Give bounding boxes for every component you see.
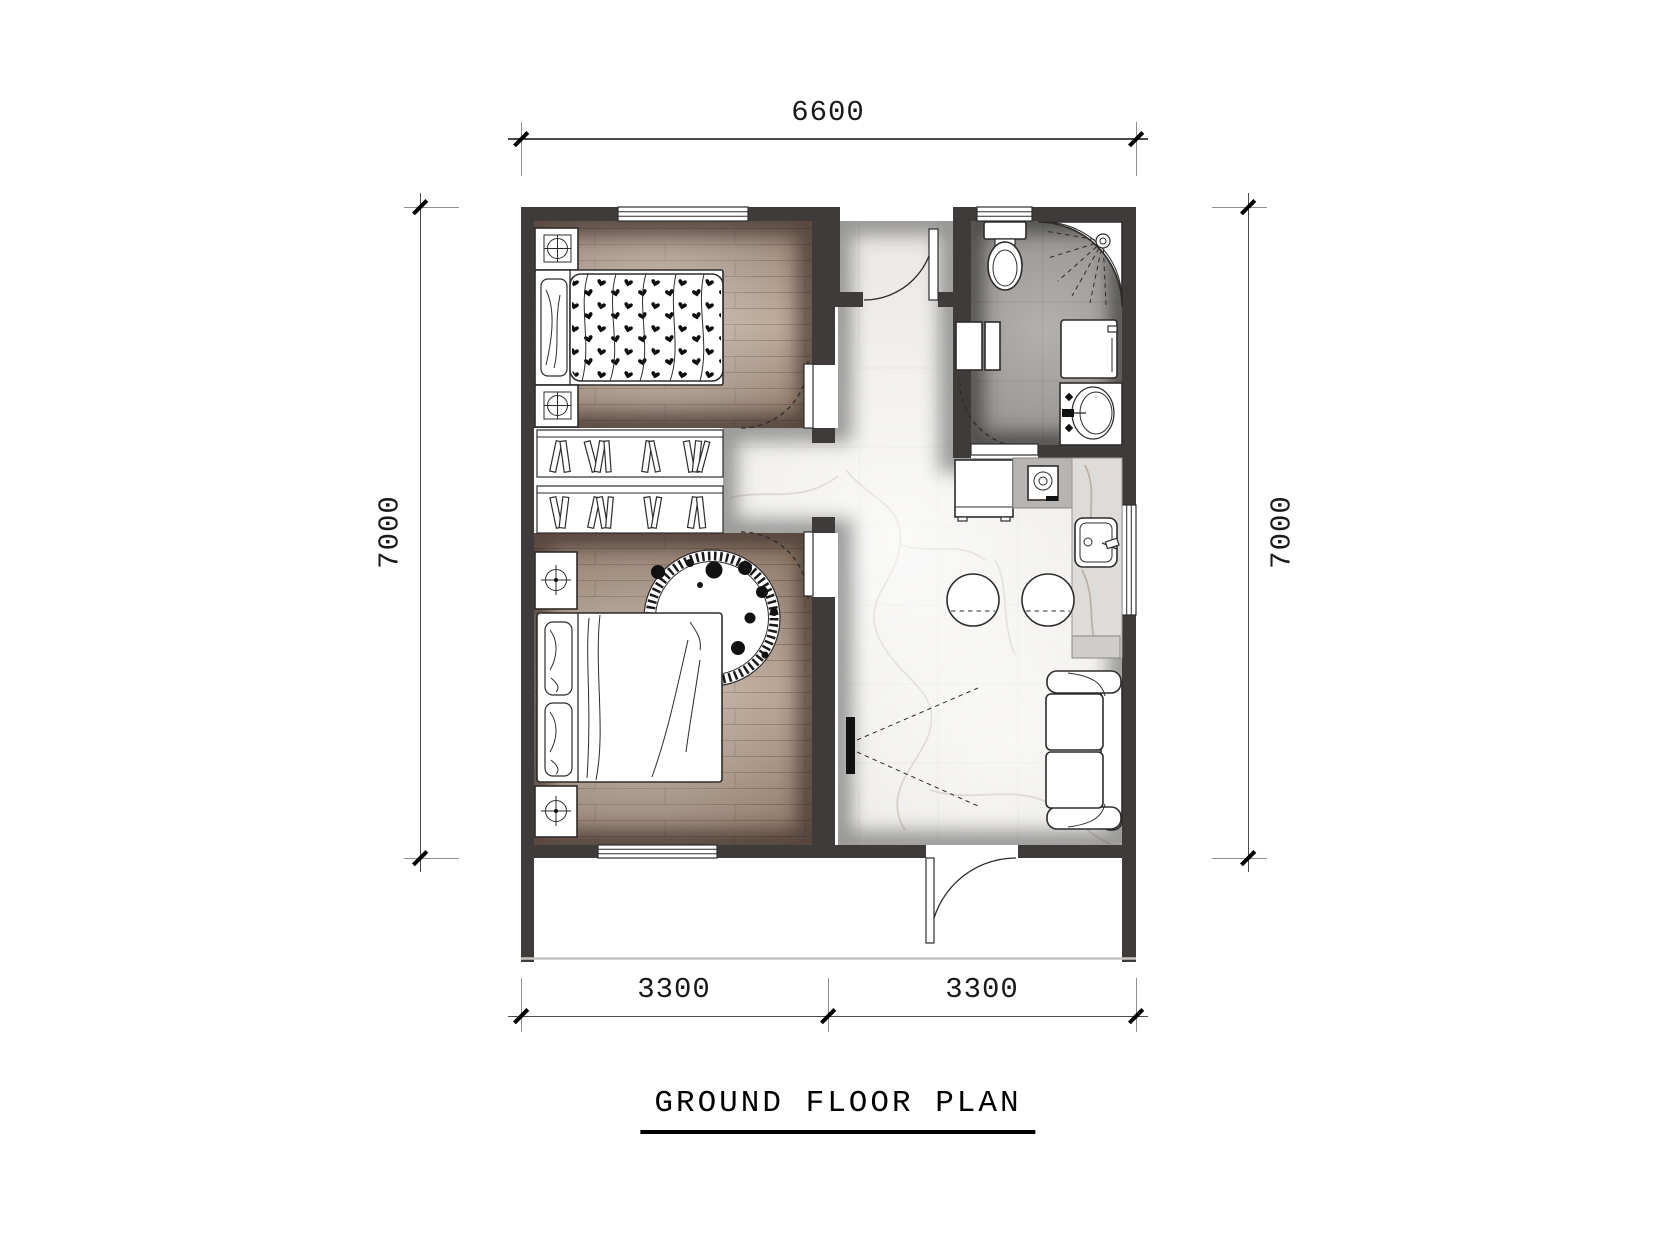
bed-single (535, 270, 723, 385)
window-bedroom2-bottom (598, 845, 717, 858)
bed-double (537, 613, 722, 782)
side-table (1072, 636, 1120, 658)
toilet (984, 222, 1026, 290)
wall-divider-lower (812, 597, 835, 845)
window-bathroom-top (977, 207, 1032, 221)
kitchen-counter-right (1072, 458, 1122, 658)
washing-machine (1061, 320, 1117, 378)
fridge (955, 460, 1013, 521)
stool-1 (947, 574, 999, 626)
wall-alcove-right-stub (938, 292, 953, 307)
dimension-bottom-left-label: 3300 (637, 973, 711, 1006)
wardrobe-shelf-bottom (537, 486, 723, 533)
wall-divider-stub1 (812, 428, 835, 443)
floor-plan-canvas: 6600 7000 7000 3300 3300 GROUND FLOOR PL… (0, 0, 1667, 1250)
nightstand-bedroom1-top (535, 228, 578, 270)
nightstand-bedroom2-top (535, 552, 577, 609)
wall-divider-upper (812, 307, 835, 365)
dimension-right-label: 7000 (1266, 495, 1299, 569)
wall-alcove-left-stub (840, 292, 863, 307)
dimension-left-label: 7000 (374, 495, 407, 569)
bathroom-basin (1060, 383, 1122, 445)
bed-single-blanket (570, 274, 723, 381)
kitchen-sink (1075, 518, 1119, 567)
bathroom-cabinet (956, 322, 1000, 370)
stool-2 (1022, 574, 1074, 626)
nightstand-bedroom2-bottom (535, 786, 577, 837)
wall-divider-top (812, 207, 840, 307)
wardrobe-shelf-top (537, 430, 723, 477)
wall-left (521, 207, 534, 962)
dimension-bottom-right-label: 3300 (945, 973, 1019, 1006)
wall-bathroom-bottom (1038, 445, 1122, 458)
sofa (1046, 671, 1122, 830)
entrance-opening (926, 845, 1018, 858)
wall-divider-stub2 (812, 517, 835, 533)
cooktop (1028, 466, 1058, 501)
window-bedroom1-top (618, 207, 748, 221)
plan-title: GROUND FLOOR PLAN (640, 1086, 1035, 1134)
kitchen-counter-top (1013, 458, 1072, 508)
dimension-top-label: 6600 (791, 96, 865, 129)
wardrobe (534, 428, 723, 533)
nightstand-bedroom1-bottom (535, 385, 578, 427)
window-kitchen-right (1122, 505, 1136, 615)
floor-plan-drawing (0, 0, 1667, 1250)
door-entrance-main (926, 858, 1016, 943)
